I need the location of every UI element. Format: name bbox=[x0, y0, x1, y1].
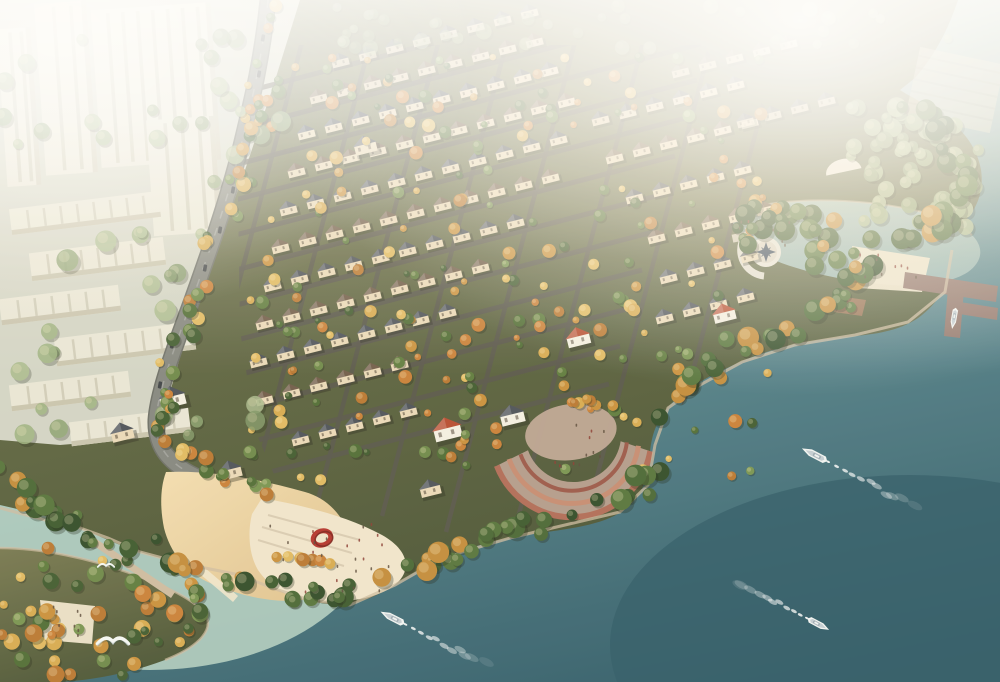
aerial-rendering-canvas bbox=[0, 0, 1000, 682]
aerial-rendering-stage bbox=[0, 0, 1000, 682]
warm-light-tint bbox=[0, 0, 1000, 682]
